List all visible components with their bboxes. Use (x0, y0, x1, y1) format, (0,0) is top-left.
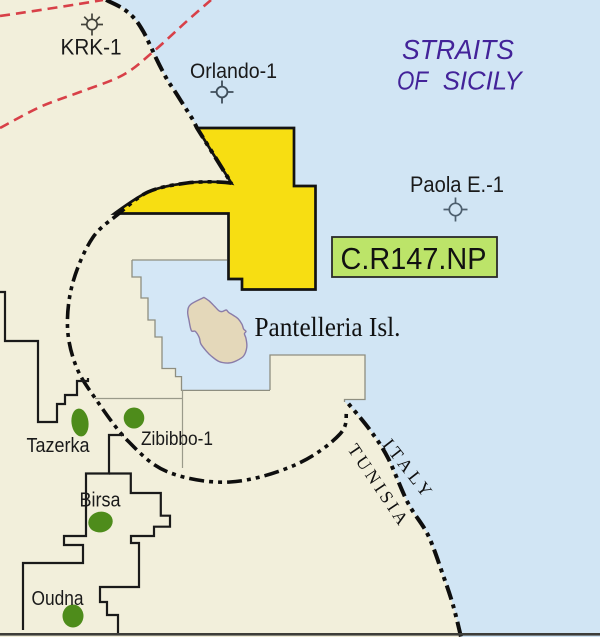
svg-text:Zibibbo-1: Zibibbo-1 (141, 428, 213, 450)
svg-text:KRK-1: KRK-1 (61, 35, 122, 60)
svg-text:Pantelleria Isl.: Pantelleria Isl. (255, 312, 401, 342)
svg-text:STRAITS: STRAITS (402, 34, 515, 65)
svg-text:Paola E.-1: Paola E.-1 (410, 172, 504, 197)
svg-text:Orlando-1: Orlando-1 (190, 60, 277, 83)
svg-text:OF: OF (397, 68, 429, 96)
svg-text:Oudna: Oudna (32, 588, 85, 610)
svg-text:SICILY: SICILY (443, 68, 524, 96)
svg-text:C.R147.NP: C.R147.NP (341, 242, 487, 276)
svg-text:Tazerka: Tazerka (27, 435, 91, 457)
svg-text:Birsa: Birsa (80, 490, 122, 512)
